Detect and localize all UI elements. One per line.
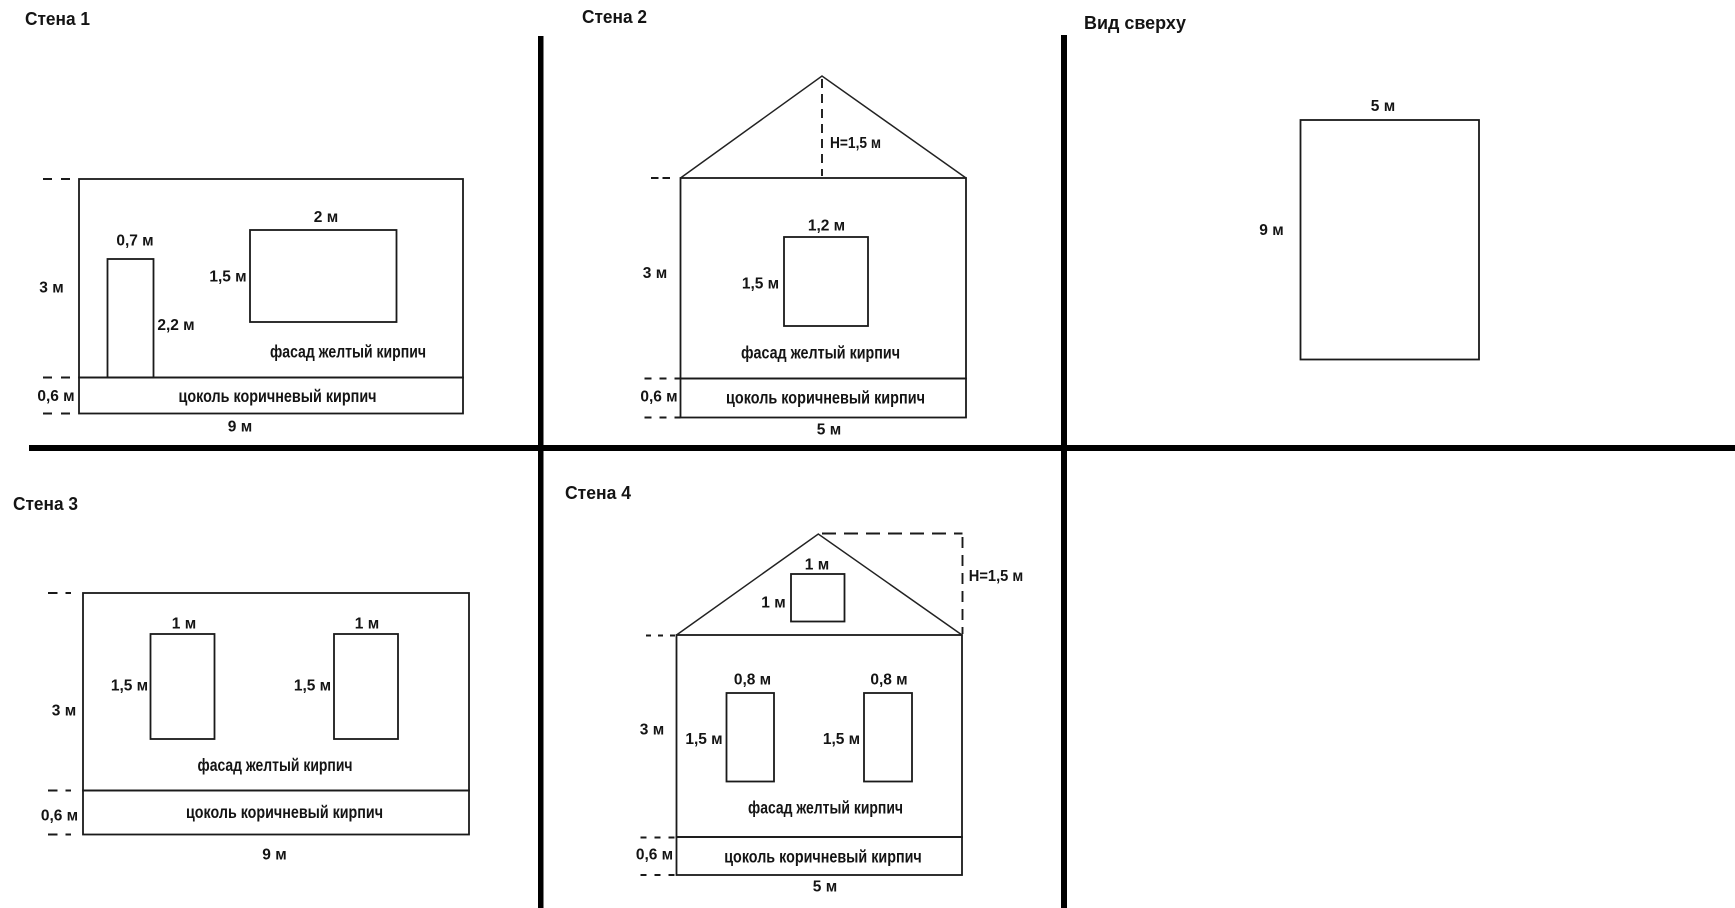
svg-text:фасад желтый кирпич: фасад желтый кирпич bbox=[741, 343, 900, 363]
svg-text:0,6 м: 0,6 м bbox=[640, 389, 677, 406]
svg-text:1,5 м: 1,5 м bbox=[294, 678, 331, 695]
svg-text:цоколь коричневый кирпич: цоколь коричневый кирпич bbox=[179, 386, 377, 406]
svg-text:1,5 м: 1,5 м bbox=[823, 731, 860, 748]
svg-text:1,5 м: 1,5 м bbox=[685, 731, 722, 748]
svg-text:9 м: 9 м bbox=[1259, 222, 1283, 239]
svg-text:Стена 4: Стена 4 bbox=[565, 483, 631, 503]
svg-text:5 м: 5 м bbox=[813, 879, 837, 896]
svg-text:фасад желтый кирпич: фасад желтый кирпич bbox=[270, 342, 426, 362]
svg-text:цоколь коричневый кирпич: цоколь коричневый кирпич bbox=[186, 802, 383, 822]
svg-text:фасад желтый кирпич: фасад желтый кирпич bbox=[198, 755, 353, 775]
svg-text:5 м: 5 м bbox=[817, 422, 841, 439]
svg-text:0,8 м: 0,8 м bbox=[870, 672, 907, 689]
svg-text:0,6 м: 0,6 м bbox=[636, 847, 673, 864]
svg-text:3 м: 3 м bbox=[640, 722, 664, 739]
svg-text:0,7 м: 0,7 м bbox=[116, 233, 153, 250]
svg-text:2 м: 2 м bbox=[314, 209, 338, 226]
svg-text:1 м: 1 м bbox=[355, 616, 379, 633]
svg-text:2,2 м: 2,2 м bbox=[157, 317, 194, 334]
svg-text:0,6 м: 0,6 м bbox=[37, 388, 74, 405]
svg-text:0,8 м: 0,8 м bbox=[734, 672, 771, 689]
svg-text:1 м: 1 м bbox=[761, 595, 785, 612]
svg-text:3 м: 3 м bbox=[52, 703, 76, 720]
svg-text:1,2 м: 1,2 м bbox=[808, 218, 845, 235]
svg-text:1,5 м: 1,5 м bbox=[209, 269, 246, 286]
svg-text:1 м: 1 м bbox=[172, 616, 196, 633]
svg-text:1,5 м: 1,5 м bbox=[742, 276, 779, 293]
svg-text:9 м: 9 м bbox=[228, 419, 252, 436]
svg-text:3 м: 3 м bbox=[39, 280, 63, 297]
svg-text:фасад желтый кирпич: фасад желтый кирпич bbox=[748, 798, 903, 818]
svg-text:Стена 1: Стена 1 bbox=[25, 9, 90, 29]
svg-text:Стена 3: Стена 3 bbox=[13, 494, 78, 514]
svg-text:3 м: 3 м bbox=[643, 265, 667, 282]
svg-text:0,6 м: 0,6 м bbox=[41, 807, 78, 824]
svg-text:9 м: 9 м bbox=[262, 847, 286, 864]
svg-text:1,5 м: 1,5 м bbox=[111, 678, 148, 695]
svg-text:цоколь коричневый кирпич: цоколь коричневый кирпич bbox=[726, 388, 925, 408]
svg-text:цоколь коричневый кирпич: цоколь коричневый кирпич bbox=[724, 847, 922, 867]
svg-text:5 м: 5 м bbox=[1371, 98, 1395, 115]
svg-text:1 м: 1 м bbox=[805, 557, 829, 574]
svg-text:Н=1,5 м: Н=1,5 м bbox=[830, 135, 881, 152]
svg-text:Н=1,5 м: Н=1,5 м bbox=[969, 568, 1024, 585]
svg-text:Вид сверху: Вид сверху bbox=[1084, 13, 1186, 33]
svg-text:Стена 2: Стена 2 bbox=[582, 7, 647, 27]
